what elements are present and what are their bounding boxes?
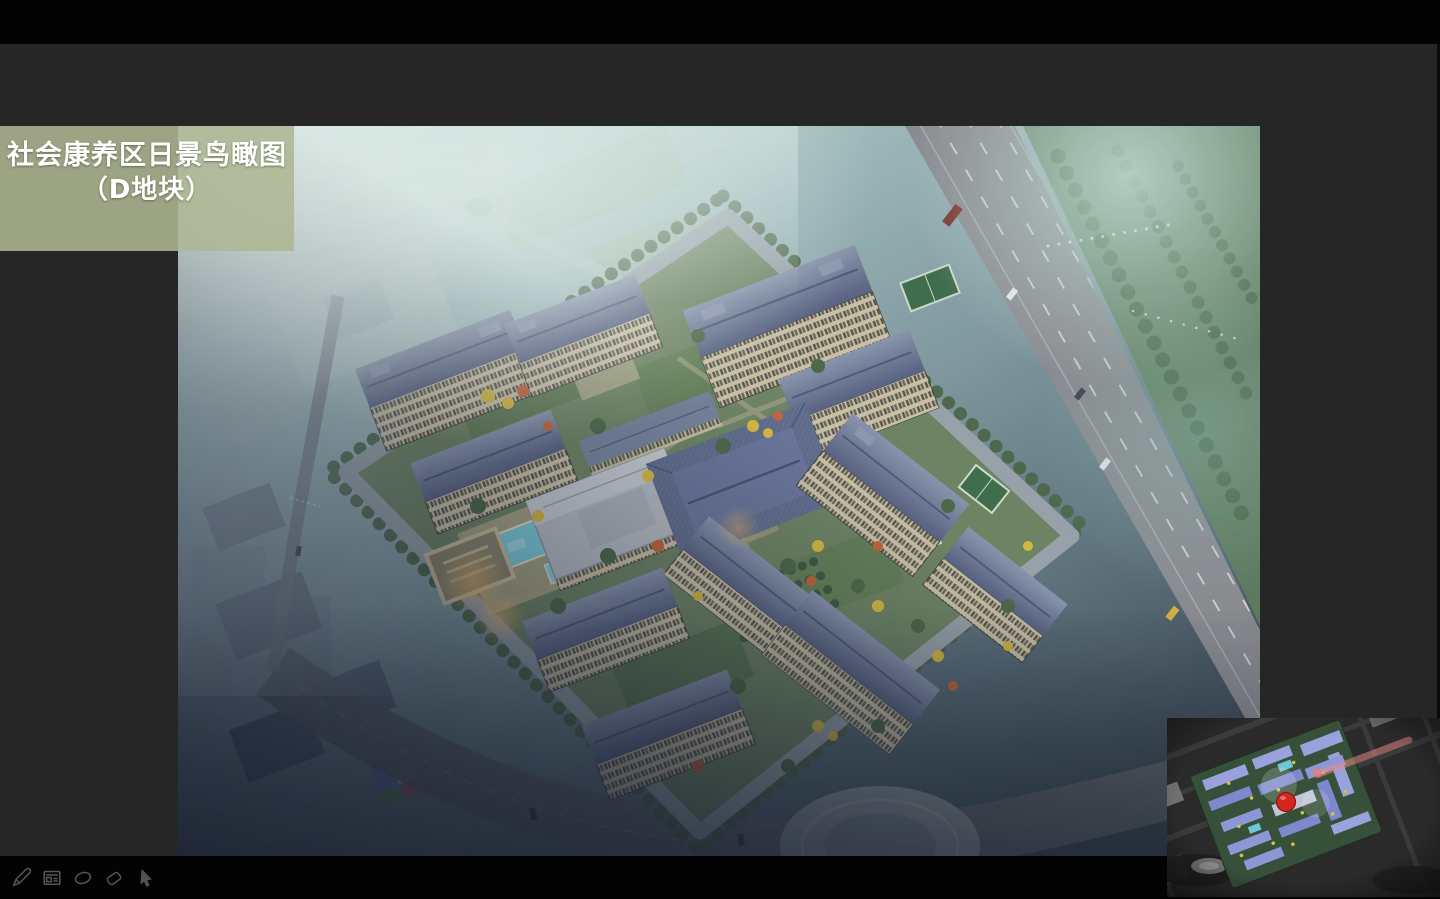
text-panel-icon — [41, 867, 63, 889]
slide-image[interactable] — [178, 126, 1260, 897]
inset-location-map — [1167, 718, 1440, 897]
top-black-bar — [0, 0, 1440, 44]
pointer-icon — [134, 867, 156, 889]
eraser-tool-button[interactable] — [103, 864, 125, 892]
pointer-tool-button[interactable] — [134, 864, 156, 892]
pen-tool-button[interactable] — [10, 864, 32, 892]
slide-title-box: 社会康养区日景鸟瞰图 （D地块） — [0, 126, 294, 251]
annotation-toolbar — [10, 864, 156, 892]
aerial-render — [178, 126, 1260, 897]
ellipse-tool-button[interactable] — [72, 864, 94, 892]
text-panel-tool-button[interactable] — [41, 864, 63, 892]
eraser-icon — [103, 867, 125, 889]
slide-title-line2: （D地块） — [0, 173, 294, 208]
presentation-viewer: 社会康养区日景鸟瞰图 （D地块） — [0, 0, 1440, 899]
viewer-stage: 社会康养区日景鸟瞰图 （D地块） — [0, 44, 1440, 856]
pen-icon — [10, 867, 32, 889]
ellipse-icon — [72, 867, 94, 889]
slide-title-line1: 社会康养区日景鸟瞰图 — [0, 139, 294, 173]
